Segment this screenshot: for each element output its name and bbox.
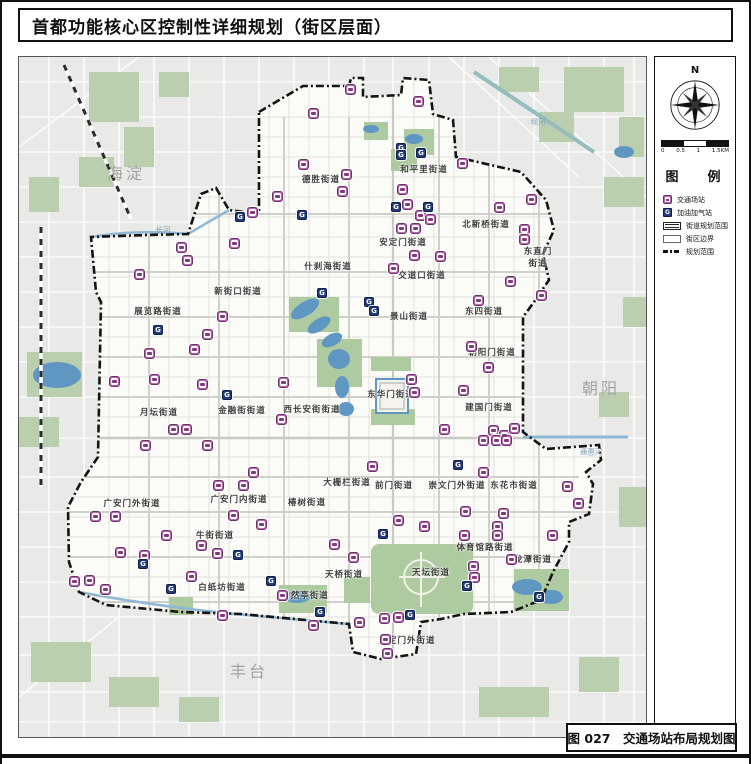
transport-station-icon bbox=[115, 547, 126, 558]
transport-station-icon bbox=[256, 519, 267, 530]
gas-station-icon: G bbox=[405, 610, 415, 620]
transport-station-icon bbox=[144, 348, 155, 359]
transport-station-icon bbox=[276, 414, 287, 425]
gas-station-icon: G bbox=[462, 581, 472, 591]
page-title: 首都功能核心区控制性详细规划（街区层面） bbox=[18, 8, 733, 42]
transport-station-icon bbox=[388, 263, 399, 274]
transport-station-icon bbox=[419, 521, 430, 532]
legend-item-label: 交通场站 bbox=[677, 195, 705, 205]
transport-station-icon bbox=[329, 539, 340, 550]
transport-station-icon bbox=[69, 576, 80, 587]
transport-station-icon bbox=[341, 169, 352, 180]
legend-drect-swatch bbox=[663, 222, 681, 230]
transport-station-icon bbox=[439, 424, 450, 435]
sheet-bottom-border bbox=[2, 754, 751, 758]
gas-station-icon: G bbox=[391, 202, 401, 212]
gas-station-icon: G bbox=[317, 288, 327, 298]
transport-station-icon bbox=[413, 96, 424, 107]
transport-station-icon bbox=[488, 425, 499, 436]
transport-station-icon bbox=[196, 540, 207, 551]
transport-station-icon bbox=[345, 84, 356, 95]
transport-station-icon bbox=[367, 461, 378, 472]
gas-station-icon: G bbox=[138, 559, 148, 569]
transport-station-icon bbox=[197, 379, 208, 390]
transport-station-icon bbox=[459, 530, 470, 541]
transport-station-icon bbox=[494, 202, 505, 213]
transport-station-icon bbox=[182, 255, 193, 266]
transport-station-icon bbox=[397, 184, 408, 195]
transport-station-icon bbox=[109, 376, 120, 387]
transport-station-icon bbox=[248, 467, 259, 478]
transport-station-icon bbox=[84, 575, 95, 586]
legend-item: G加油加气站 bbox=[663, 206, 735, 219]
gas-station-icon: G bbox=[369, 306, 379, 316]
transport-station-icon bbox=[406, 374, 417, 385]
transport-station-icon bbox=[519, 234, 530, 245]
transport-station-icon bbox=[460, 506, 471, 517]
legend-item-label: 街区边界 bbox=[686, 234, 714, 244]
transport-station-icon bbox=[425, 214, 436, 225]
transport-station-icon bbox=[213, 480, 224, 491]
scale-segment bbox=[662, 141, 683, 146]
transport-station-icon bbox=[473, 295, 484, 306]
plan-sheet: 首都功能核心区控制性详细规划（街区层面） bbox=[0, 0, 751, 764]
transport-station-icon bbox=[348, 552, 359, 563]
transport-station-icon bbox=[379, 613, 390, 624]
transport-station-icon bbox=[506, 554, 517, 565]
transport-station-icon bbox=[149, 374, 160, 385]
transport-station-icon bbox=[277, 590, 288, 601]
transport-station-icon bbox=[483, 362, 494, 373]
transport-station-icon bbox=[217, 311, 228, 322]
transport-station-icon bbox=[505, 276, 516, 287]
transport-station-icon bbox=[498, 508, 509, 519]
transport-station-icon bbox=[217, 610, 228, 621]
gas-station-icon: G bbox=[222, 390, 232, 400]
transport-station-icon bbox=[110, 511, 121, 522]
transport-station-icon bbox=[202, 440, 213, 451]
transport-station-icon bbox=[491, 435, 502, 446]
gas-station-icon: G bbox=[235, 212, 245, 222]
transport-station-icon bbox=[536, 290, 547, 301]
scale-segment bbox=[683, 141, 706, 146]
transport-station-icon bbox=[168, 424, 179, 435]
transport-station-icon bbox=[458, 385, 469, 396]
transport-station-icon bbox=[90, 511, 101, 522]
legend-item: 规划范围 bbox=[663, 245, 735, 258]
transport-station-icon bbox=[238, 480, 249, 491]
gas-station-icon: G bbox=[266, 576, 276, 586]
transport-station-icon bbox=[526, 194, 537, 205]
transport-station-icon bbox=[140, 440, 151, 451]
transport-station-icon bbox=[278, 377, 289, 388]
transport-station-icon bbox=[229, 238, 240, 249]
transport-station-icon bbox=[393, 515, 404, 526]
gas-station-icon: G bbox=[233, 550, 243, 560]
gas-station-icon: G bbox=[423, 202, 433, 212]
transport-station-icon bbox=[308, 108, 319, 119]
scale-label: 0.5 bbox=[676, 148, 685, 154]
gas-station-icon: G bbox=[297, 210, 307, 220]
legend-item-label: 加油加气站 bbox=[677, 208, 712, 218]
transport-station-icon bbox=[478, 435, 489, 446]
transport-station-icon bbox=[402, 199, 413, 210]
transport-station-icon bbox=[519, 224, 530, 235]
legend-rect-swatch bbox=[663, 235, 681, 243]
transport-station-icon bbox=[478, 467, 489, 478]
legend-station-swatch bbox=[663, 195, 672, 204]
legend-items: 交通场站G加油加气站街道规划范围街区边界规划范围 bbox=[655, 193, 735, 258]
scale-label: 1 bbox=[697, 148, 701, 154]
transport-station-icon bbox=[435, 251, 446, 262]
transport-station-icon bbox=[466, 341, 477, 352]
transport-station-icon bbox=[409, 387, 420, 398]
transport-station-icon bbox=[393, 612, 404, 623]
gas-station-icon: G bbox=[315, 607, 325, 617]
transport-station-icon bbox=[272, 191, 283, 202]
transport-station-icon bbox=[308, 620, 319, 631]
legend-gas-swatch: G bbox=[663, 208, 672, 217]
legend-item: 街区边界 bbox=[663, 232, 735, 245]
legend-dashdot-swatch bbox=[663, 250, 681, 253]
scale-bar: 00.511.5KM bbox=[661, 140, 729, 154]
transport-station-icon bbox=[573, 498, 584, 509]
transport-station-icon bbox=[468, 561, 479, 572]
gas-station-icon: G bbox=[416, 148, 426, 158]
transport-station-icon bbox=[247, 207, 258, 218]
transport-station-icon bbox=[298, 159, 309, 170]
transport-station-icon bbox=[509, 423, 520, 434]
transport-station-icon bbox=[228, 510, 239, 521]
legend-panel: N 00.511.5KM 图 例 交通场站G bbox=[654, 56, 736, 738]
transport-station-icon bbox=[380, 634, 391, 645]
transport-station-icon bbox=[492, 530, 503, 541]
transport-station-icon bbox=[176, 242, 187, 253]
compass-north-label: N bbox=[655, 65, 735, 76]
transport-station-icon bbox=[100, 584, 111, 595]
transport-station-icon bbox=[547, 530, 558, 541]
figure-caption: 图 027 交通场站布局规划图 bbox=[566, 723, 737, 752]
transport-station-icon bbox=[396, 223, 407, 234]
transport-station-icon bbox=[212, 548, 223, 559]
gas-station-icon: G bbox=[396, 150, 406, 160]
legend-item-label: 规划范围 bbox=[686, 247, 714, 257]
legend-item: 街道规划范围 bbox=[663, 219, 735, 232]
transport-station-icon bbox=[134, 269, 145, 280]
transport-station-icon bbox=[189, 344, 200, 355]
compass-rose-icon bbox=[666, 76, 724, 134]
transport-station-icon bbox=[161, 530, 172, 541]
transport-station-icon bbox=[457, 158, 468, 169]
transport-station-icon bbox=[562, 481, 573, 492]
gas-station-icon: G bbox=[534, 592, 544, 602]
scale-label: 0 bbox=[661, 148, 665, 154]
transport-station-icon bbox=[186, 571, 197, 582]
map-panel: 海淀朝阳丰台德胜街道和平里街道北新桥街道安定门街道东直门 街道交道口街道什刹海街… bbox=[18, 56, 647, 738]
transport-station-icon bbox=[202, 329, 213, 340]
gas-station-icon: G bbox=[153, 325, 163, 335]
transport-station-icon bbox=[410, 223, 421, 234]
scale-segment bbox=[707, 141, 728, 146]
scale-label: 1.5KM bbox=[712, 148, 729, 154]
legend-title: 图 例 bbox=[659, 166, 735, 185]
legend-item: 交通场站 bbox=[663, 193, 735, 206]
gas-station-icon: G bbox=[453, 460, 463, 470]
legend-item-label: 街道规划范围 bbox=[686, 221, 728, 231]
transport-station-icon bbox=[354, 617, 365, 628]
transport-station-icon bbox=[337, 186, 348, 197]
transport-station-icon bbox=[181, 424, 192, 435]
gas-station-icon: G bbox=[166, 584, 176, 594]
transport-station-icon bbox=[382, 648, 393, 659]
transport-station-icon bbox=[409, 250, 420, 261]
map-icons-layer: GGGGGGGGGGGGGGGGGGGGGG bbox=[19, 57, 646, 737]
gas-station-icon: G bbox=[378, 529, 388, 539]
